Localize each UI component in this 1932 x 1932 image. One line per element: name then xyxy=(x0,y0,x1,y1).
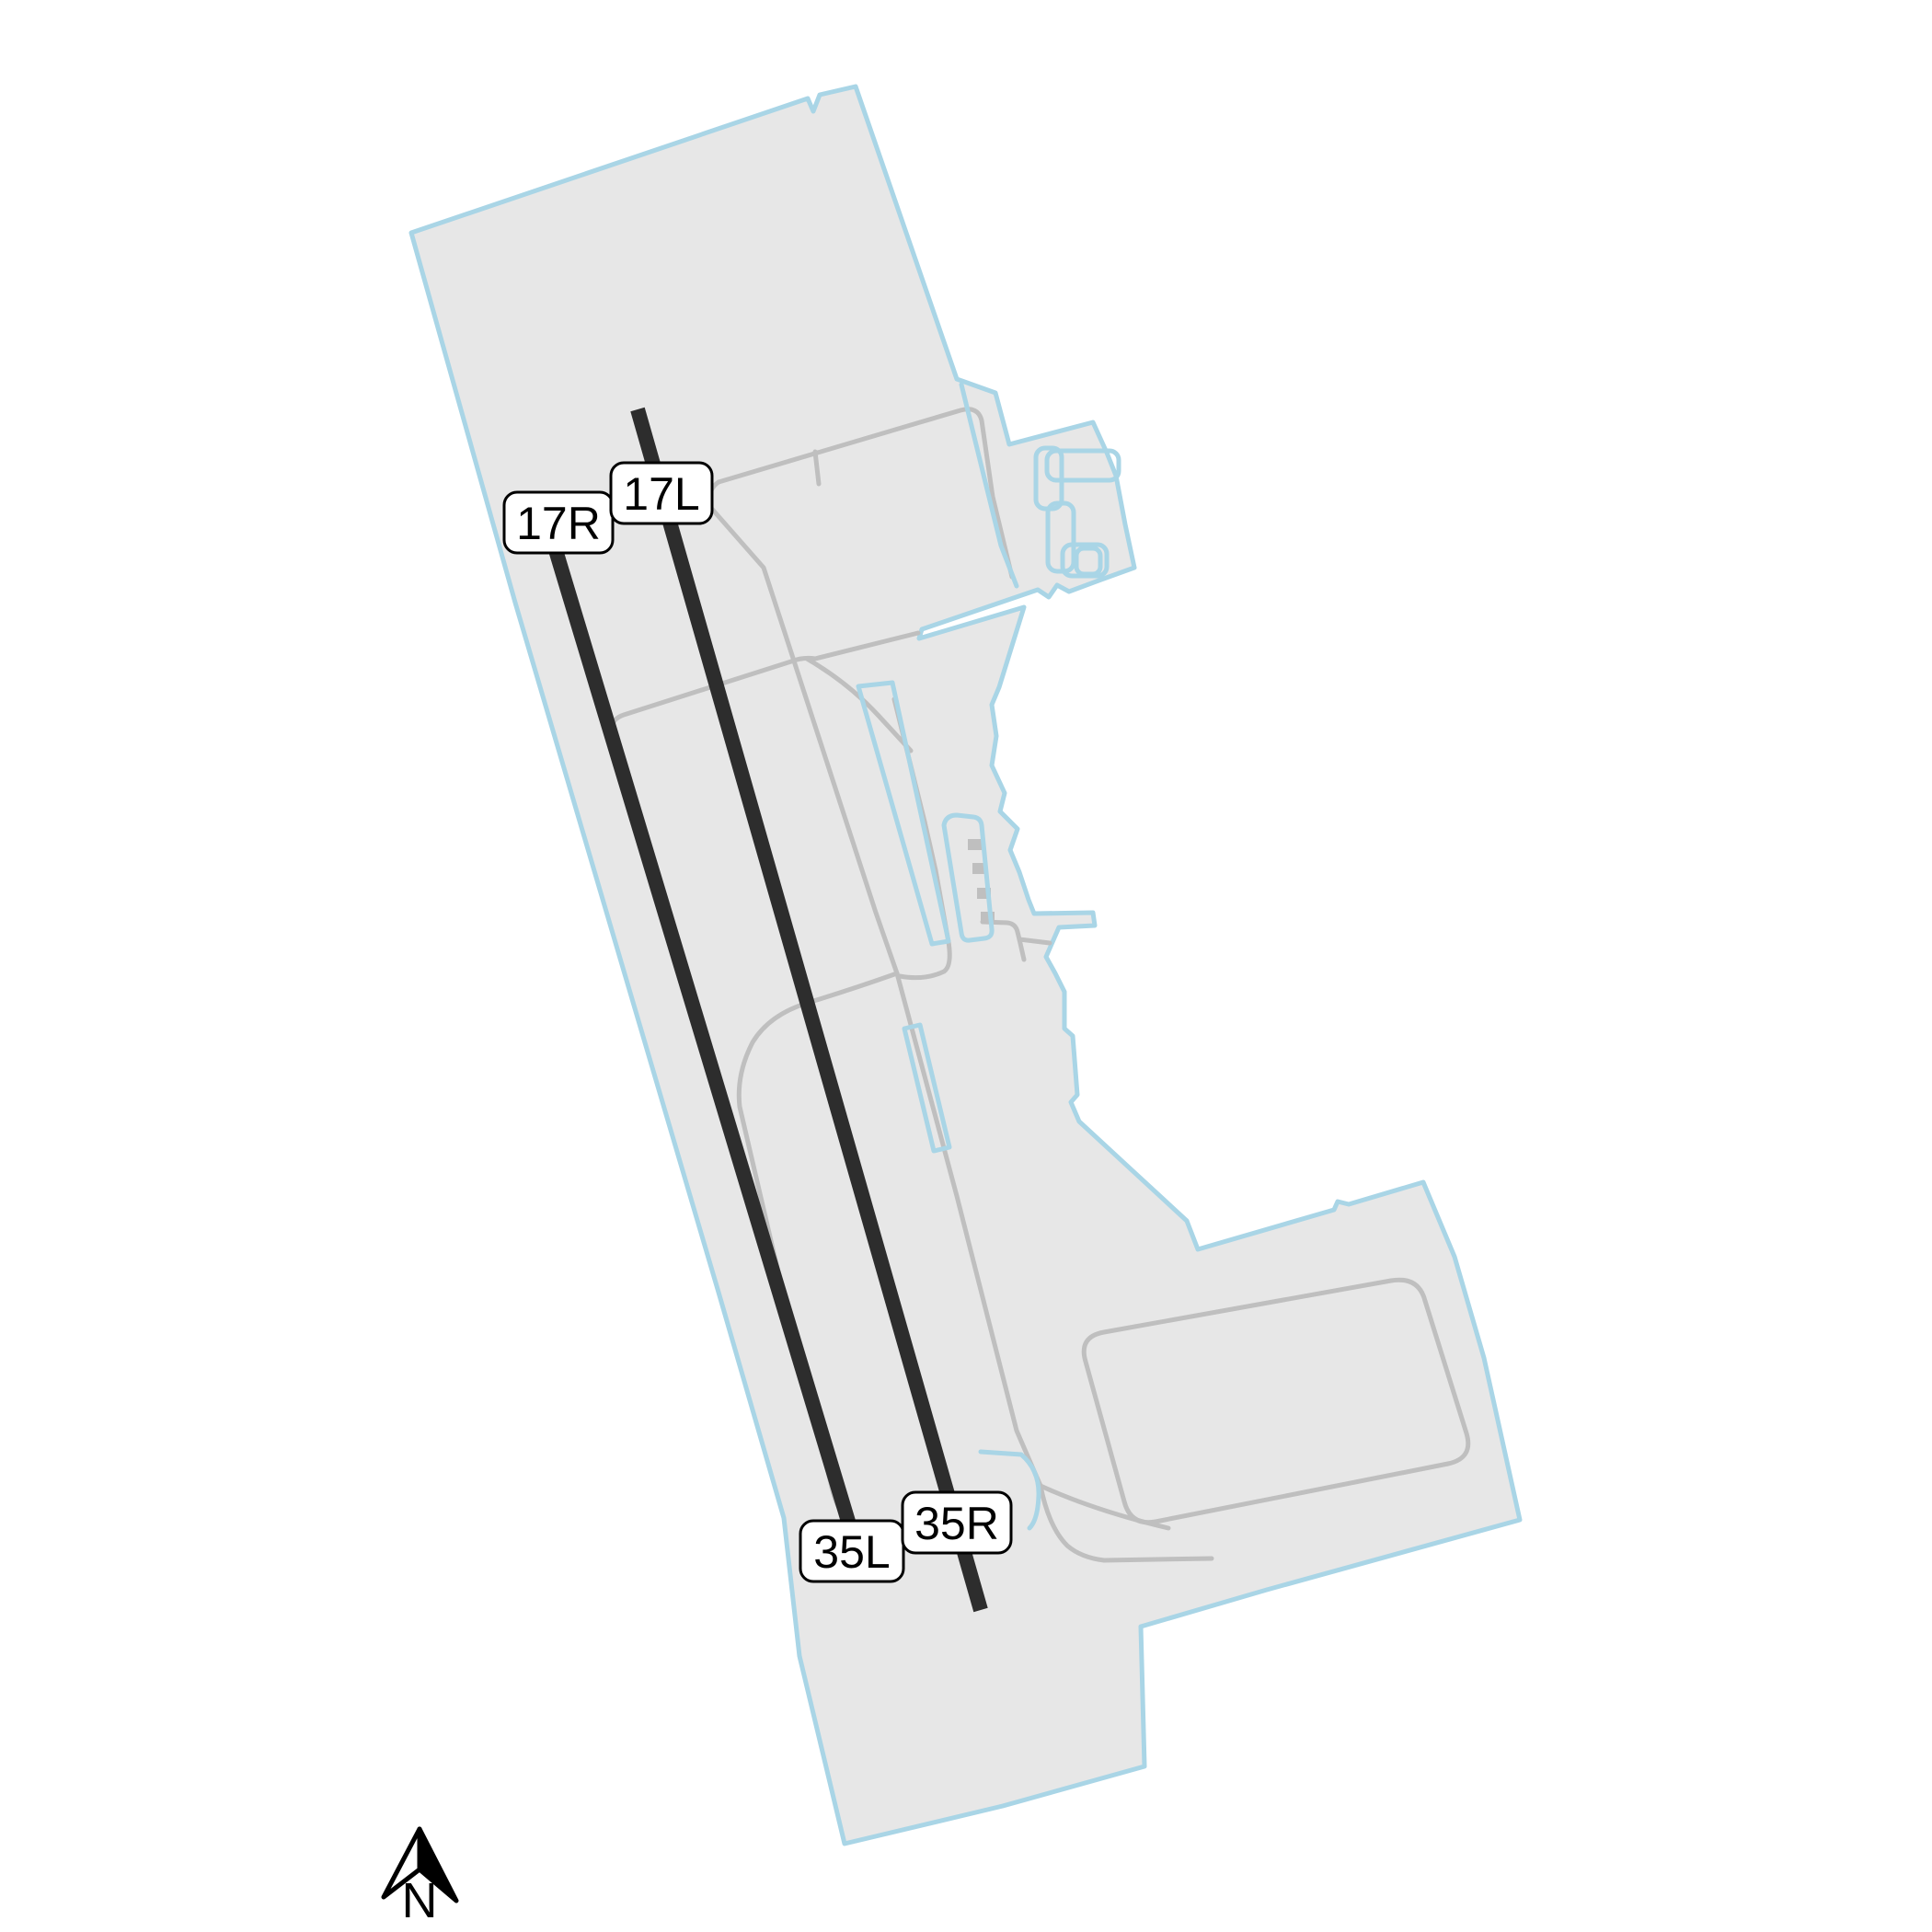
runway-label-text-17L: 17L xyxy=(623,468,699,520)
airport-map-canvas: 17R17L35L35R N xyxy=(0,0,1932,1932)
airport-runway-diagram: 17R17L35L35R N xyxy=(0,0,1932,1932)
runway-label-17R: 17R xyxy=(504,492,613,553)
runway-label-35L: 35L xyxy=(800,1521,903,1581)
runway-label-text-35L: 35L xyxy=(813,1526,890,1578)
runway-label-text-17R: 17R xyxy=(516,498,601,549)
north-arrow-label: N xyxy=(402,1873,438,1928)
runway-label-35R: 35R xyxy=(903,1492,1011,1553)
runway-label-17L: 17L xyxy=(611,463,712,523)
gate-tick-1 xyxy=(968,839,982,850)
runway-label-text-35R: 35R xyxy=(914,1498,999,1549)
north-arrow-layer: N xyxy=(384,1829,456,1928)
